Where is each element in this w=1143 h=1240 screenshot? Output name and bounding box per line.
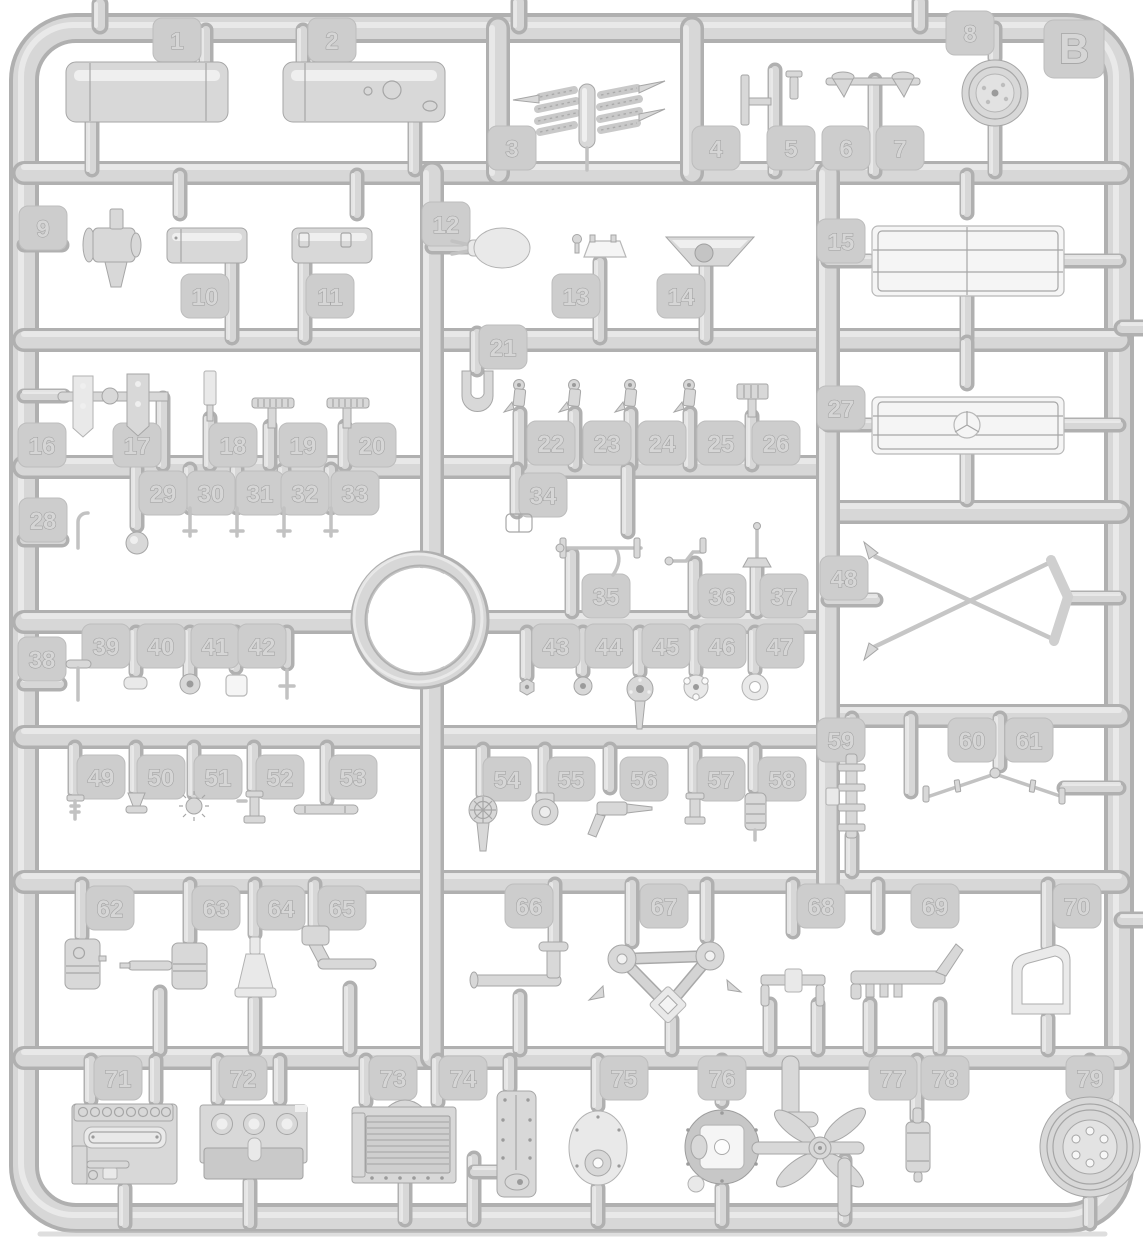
part-tab-59: 59	[817, 718, 865, 762]
part-number-40: 40	[148, 634, 175, 661]
part-number-35: 35	[593, 584, 620, 611]
center-ring	[354, 554, 482, 682]
part-58-ribbed-canister	[745, 793, 766, 840]
part-71-engine-block	[72, 1104, 177, 1184]
part-41-square-pad	[226, 675, 247, 696]
part-tab-3: 3	[488, 126, 536, 170]
part-tab-48: 48	[820, 556, 868, 600]
part-number-13: 13	[563, 284, 590, 311]
part-tab-37: 37	[760, 574, 808, 618]
runner-post	[88, 122, 92, 170]
sprue-bar	[686, 28, 692, 173]
part-69-manifold-bracket	[851, 944, 963, 999]
part-64-funnel-stand	[235, 937, 276, 997]
part-number-21: 21	[490, 335, 517, 362]
runner-post	[311, 884, 315, 924]
part-tab-25: 25	[697, 421, 745, 465]
runner-post	[214, 1060, 218, 1100]
part-50-valve-cone	[126, 793, 147, 813]
part-10-air-tank	[167, 228, 247, 263]
runner-post	[668, 1020, 672, 1050]
sprue-bar	[24, 167, 1119, 173]
part-tab-74: 74	[439, 1056, 487, 1100]
part-tab-63: 63	[192, 886, 240, 930]
part-tab-72: 72	[219, 1056, 267, 1100]
runner-post	[606, 749, 610, 788]
part-tab-60: 60	[948, 718, 996, 762]
runner-post	[568, 554, 572, 612]
part-number-72: 72	[230, 1066, 257, 1093]
runner-post	[434, 1060, 438, 1102]
part-22-25-shock-brackets	[504, 380, 696, 413]
part-tab-75: 75	[600, 1056, 648, 1100]
runner-post	[87, 1060, 91, 1100]
part-number-32: 32	[292, 481, 319, 508]
part-tab-8: 8	[946, 11, 994, 55]
runner-post	[1044, 1018, 1048, 1050]
part-tab-78: 78	[921, 1056, 969, 1100]
part-79-road-wheel	[1040, 1097, 1140, 1197]
runner-post	[516, 413, 520, 465]
part-tab-53: 53	[329, 755, 377, 799]
part-number-15: 15	[828, 229, 855, 256]
part-tab-79: 79	[1066, 1056, 1114, 1100]
part-tab-21: 21	[479, 325, 527, 369]
sprue-bar	[828, 710, 1119, 716]
part-52-spool	[238, 791, 265, 823]
runner-post	[594, 1188, 598, 1222]
part-tab-23: 23	[583, 421, 631, 465]
part-tab-47: 47	[756, 624, 804, 668]
part-number-59: 59	[828, 728, 855, 755]
sprue-bar	[24, 334, 1119, 340]
runner-post	[251, 1000, 255, 1050]
part-number-71: 71	[105, 1066, 132, 1093]
part-number-3: 3	[505, 136, 518, 163]
part-67-triangle-linkage	[589, 942, 741, 1024]
part-tab-19: 19	[279, 423, 327, 467]
part-number-49: 49	[88, 765, 115, 792]
part-tab-10: 10	[181, 274, 229, 318]
part-60-61-linkage	[923, 768, 1065, 804]
part-tab-61: 61	[1005, 718, 1053, 762]
part-tab-6: 6	[822, 126, 870, 170]
runner-post	[963, 454, 967, 500]
part-number-8: 8	[963, 21, 976, 48]
runner-post	[190, 747, 194, 794]
runner-stub	[474, 1168, 498, 1172]
sprue-bar	[822, 173, 828, 882]
part-tab-11: 11	[306, 274, 354, 318]
part-tab-56: 56	[620, 757, 668, 801]
runner-post	[78, 884, 82, 936]
part-tab-77: 77	[869, 1056, 917, 1100]
runner-post	[250, 747, 254, 788]
part-number-31: 31	[247, 481, 274, 508]
part-tab-44: 44	[585, 624, 633, 668]
part-number-52: 52	[267, 765, 294, 792]
runner-post	[353, 175, 357, 214]
part-1-fuel-tank	[66, 62, 228, 122]
runner-post	[132, 632, 136, 672]
runner-post	[996, 718, 1000, 766]
sprue-nub	[515, 2, 519, 26]
part-tab-54: 54	[483, 757, 531, 801]
part-number-47: 47	[767, 634, 794, 661]
part-72-gearbox-plate	[200, 1105, 307, 1179]
part-number-70: 70	[1064, 894, 1091, 921]
part-tab-33: 33	[331, 471, 379, 515]
part-number-34: 34	[530, 483, 557, 510]
runner-post	[71, 747, 75, 792]
part-tab-30: 30	[187, 471, 235, 515]
part-49-bolt	[67, 795, 84, 819]
sprue-bar	[828, 506, 1119, 512]
runner-post	[513, 469, 517, 512]
part-46-notched-disc	[684, 675, 708, 700]
part-tab-14: 14	[657, 274, 705, 318]
part-number-27: 27	[828, 396, 855, 423]
part-tab-13: 13	[552, 274, 600, 318]
part-28-hook-pin	[78, 513, 88, 548]
part-tab-66: 66	[505, 884, 553, 928]
runner-post	[156, 992, 160, 1050]
part-number-50: 50	[148, 765, 175, 792]
part-tab-73: 73	[369, 1056, 417, 1100]
part-2-fuel-tank	[283, 62, 445, 122]
part-number-64: 64	[268, 896, 295, 923]
runner-post	[751, 632, 755, 670]
part-number-19: 19	[290, 433, 317, 460]
part-tab-46: 46	[698, 624, 746, 668]
part-77-cooling-fan	[752, 1056, 870, 1216]
sprue-b-svg: 1234567891011121314151617181920212223242…	[0, 0, 1143, 1240]
part-number-42: 42	[249, 634, 276, 661]
part-number-30: 30	[198, 481, 225, 508]
part-number-53: 53	[340, 765, 367, 792]
part-number-48: 48	[831, 566, 858, 593]
part-number-33: 33	[342, 481, 369, 508]
part-tab-38: 38	[18, 637, 66, 681]
part-73-oil-pan	[352, 1100, 456, 1183]
runner-post	[341, 426, 345, 465]
runner-post	[991, 126, 995, 172]
part-number-44: 44	[596, 634, 623, 661]
part-tab-27: 27	[817, 386, 865, 430]
part-tab-36: 36	[698, 574, 746, 618]
part-43-hex-nut	[520, 679, 534, 695]
part-tab-49: 49	[77, 755, 125, 799]
part-number-75: 75	[611, 1066, 638, 1093]
runner-post	[152, 1060, 156, 1100]
part-63-cylinder-rod	[120, 943, 207, 989]
runner-post	[848, 836, 852, 872]
part-number-62: 62	[97, 896, 124, 923]
part-number-67: 67	[651, 894, 678, 921]
part-tab-68: 68	[797, 884, 845, 928]
runner-post	[691, 749, 695, 790]
part-number-43: 43	[543, 634, 570, 661]
part-29-cap-disc	[126, 532, 148, 554]
part-number-9: 9	[36, 216, 49, 243]
sprue-photo: 1234567891011121314151617181920212223242…	[0, 0, 1143, 1240]
runner-post	[246, 1182, 250, 1224]
part-tab-71: 71	[94, 1056, 142, 1100]
runner-post	[276, 1060, 280, 1100]
part-tab-18: 18	[209, 423, 257, 467]
runner-post	[121, 1188, 125, 1224]
part-number-12: 12	[433, 212, 460, 239]
part-number-10: 10	[192, 284, 219, 311]
part-number-6: 6	[839, 136, 852, 163]
runner-stub	[1064, 421, 1119, 425]
runner-post	[516, 996, 520, 1050]
runner-stub	[1064, 257, 1119, 261]
runner-post	[751, 749, 755, 788]
part-number-74: 74	[450, 1066, 477, 1093]
part-tab-32: 32	[281, 471, 329, 515]
runner-post	[186, 884, 190, 940]
part-number-41: 41	[202, 634, 229, 661]
part-number-37: 37	[771, 584, 798, 611]
part-number-17: 17	[124, 433, 151, 460]
part-number-57: 57	[708, 767, 735, 794]
part-tab-51: 51	[194, 755, 242, 799]
runner-post	[506, 1060, 510, 1088]
part-tab-45: 45	[642, 624, 690, 668]
part-11-air-tank	[292, 228, 372, 263]
runner-post	[686, 413, 690, 465]
part-tab-58: 58	[758, 757, 806, 801]
part-56-nozzle	[588, 802, 652, 837]
part-number-18: 18	[220, 433, 247, 460]
part-76-round-cover	[685, 1110, 759, 1192]
runner-post	[594, 1060, 598, 1106]
part-number-78: 78	[932, 1066, 959, 1093]
sprue-letter-tab: B	[1044, 20, 1104, 78]
runner-post	[323, 747, 327, 800]
part-number-66: 66	[516, 894, 543, 921]
part-tab-62: 62	[86, 886, 134, 930]
part-number-14: 14	[668, 284, 695, 311]
part-tab-31: 31	[236, 471, 284, 515]
part-number-2: 2	[325, 28, 338, 55]
runner-post	[718, 1188, 722, 1222]
runner-post	[963, 296, 967, 338]
runner-post	[636, 632, 640, 672]
part-45-flanged-hub	[627, 676, 653, 729]
runner-post	[346, 988, 350, 1050]
part-48-scissor-linkage	[864, 542, 1068, 660]
sprue-letter: B	[1059, 25, 1089, 72]
part-number-73: 73	[380, 1066, 407, 1093]
part-66-exhaust-pipe	[470, 942, 568, 988]
part-44-washer-disc	[574, 677, 592, 695]
runner-post	[541, 749, 545, 790]
sprue-nub	[916, 2, 920, 26]
sprue-nub	[1122, 916, 1143, 920]
part-tab-15: 15	[817, 219, 865, 263]
runner-post	[748, 416, 752, 465]
part-tab-34: 34	[519, 473, 567, 517]
runner-post	[753, 567, 757, 612]
part-number-16: 16	[29, 433, 56, 460]
runner-post	[874, 884, 878, 928]
part-tab-42: 42	[238, 624, 286, 668]
part-number-5: 5	[784, 136, 797, 163]
runner-post	[133, 469, 137, 526]
part-number-61: 61	[1016, 728, 1043, 755]
part-number-28: 28	[30, 508, 57, 535]
part-tab-26: 26	[752, 421, 800, 465]
runner-post	[479, 749, 483, 794]
part-tab-12: 12	[422, 202, 470, 246]
part-number-38: 38	[29, 647, 56, 674]
part-tab-43: 43	[532, 624, 580, 668]
part-number-68: 68	[808, 894, 835, 921]
part-74-side-cover	[497, 1091, 536, 1197]
part-65-crank-arm	[302, 926, 376, 969]
runner-post	[691, 563, 695, 612]
part-tab-50: 50	[137, 755, 185, 799]
part-number-45: 45	[653, 634, 680, 661]
part-number-56: 56	[631, 767, 658, 794]
part-57-capped-bushing	[685, 793, 705, 824]
part-number-69: 69	[922, 894, 949, 921]
part-tab-5: 5	[767, 126, 815, 170]
part-14-funnel-bowl	[666, 237, 754, 266]
runner-post	[963, 175, 967, 213]
runner-post	[176, 175, 180, 214]
part-number-20: 20	[359, 433, 386, 460]
runner-post	[703, 884, 707, 938]
part-number-79: 79	[1077, 1066, 1104, 1093]
runner-post	[202, 30, 206, 62]
part-tab-41: 41	[191, 624, 239, 668]
part-number-25: 25	[708, 431, 735, 458]
part-tab-69: 69	[911, 884, 959, 928]
runner-post	[362, 1060, 366, 1102]
part-number-7: 7	[893, 136, 906, 163]
runner-post	[692, 632, 696, 672]
part-tab-70: 70	[1053, 884, 1101, 928]
part-tab-35: 35	[582, 574, 630, 618]
part-53-rod-handle	[294, 805, 358, 814]
runner-post	[628, 884, 632, 942]
part-26-ribbed-clamp	[737, 384, 768, 417]
part-38-flat-head-pin	[66, 660, 91, 700]
part-13-seat-bracket	[573, 235, 627, 258]
part-55-eyelet	[532, 793, 558, 825]
runner-post	[907, 718, 911, 792]
runner-post	[766, 1004, 770, 1050]
runner-post	[624, 469, 628, 532]
runner-post	[186, 632, 190, 676]
part-37-gear-lever	[743, 523, 771, 568]
part-62-piston-cylinder	[65, 939, 106, 989]
part-15-radiator-grille	[872, 226, 1064, 296]
runner-post	[936, 1004, 940, 1050]
part-tab-7: 7	[876, 126, 924, 170]
runner-stub	[1064, 784, 1119, 788]
part-number-58: 58	[769, 767, 796, 794]
part-number-23: 23	[594, 431, 621, 458]
part-number-51: 51	[205, 765, 232, 792]
part-number-54: 54	[494, 767, 521, 794]
part-42-cross-pin	[280, 670, 294, 698]
part-number-11: 11	[317, 284, 342, 311]
runner-post	[1086, 1200, 1090, 1224]
sprue-nub	[96, 4, 100, 26]
runner-post	[1044, 884, 1048, 946]
part-tab-24: 24	[638, 421, 686, 465]
part-40-washer	[180, 674, 200, 694]
part-tab-9: 9	[19, 206, 67, 250]
part-tab-20: 20	[348, 423, 396, 467]
runner-post	[401, 1184, 405, 1220]
part-tab-64: 64	[257, 886, 305, 930]
part-tab-65: 65	[318, 886, 366, 930]
part-number-36: 36	[709, 584, 736, 611]
part-number-1: 1	[170, 28, 183, 55]
runner-post	[411, 122, 415, 170]
part-8-pulley-wheel	[962, 60, 1028, 126]
part-75-oval-cover	[569, 1111, 627, 1185]
part-number-26: 26	[763, 431, 790, 458]
part-number-46: 46	[709, 634, 736, 661]
runner-post	[866, 1004, 870, 1050]
part-27-radiator-grille-emblem	[872, 397, 1064, 454]
part-70-d-plate	[1012, 945, 1070, 1014]
part-39-pad	[124, 677, 147, 689]
runner-post	[871, 80, 875, 172]
part-number-39: 39	[93, 634, 120, 661]
part-tab-22: 22	[527, 421, 575, 465]
part-tab-28: 28	[19, 498, 67, 542]
runner-post	[266, 426, 270, 465]
runner-post	[473, 333, 477, 370]
part-number-60: 60	[959, 728, 986, 755]
part-tab-29: 29	[139, 471, 187, 515]
part-number-29: 29	[150, 481, 177, 508]
part-tab-67: 67	[640, 884, 688, 928]
part-number-77: 77	[880, 1066, 907, 1093]
runner-post	[299, 30, 303, 62]
part-number-55: 55	[558, 767, 585, 794]
part-tab-2: 2	[308, 18, 356, 62]
part-54-handwheel	[469, 796, 497, 851]
part-number-63: 63	[203, 896, 230, 923]
runner-post	[523, 632, 527, 676]
part-9-water-pump	[83, 209, 141, 287]
part-tab-4: 4	[692, 126, 740, 170]
runner-stub	[1070, 594, 1119, 598]
runner-post	[814, 1004, 818, 1050]
runner-post	[789, 884, 793, 932]
part-tab-76: 76	[698, 1056, 746, 1100]
runner-post	[301, 264, 305, 338]
part-tab-1: 1	[153, 18, 201, 62]
part-number-22: 22	[538, 431, 565, 458]
runner-post	[963, 342, 967, 384]
part-number-24: 24	[649, 431, 676, 458]
part-number-76: 76	[709, 1066, 736, 1093]
part-tab-16: 16	[18, 423, 66, 467]
runner-post	[251, 884, 255, 934]
sprue-nub	[1122, 324, 1143, 328]
part-number-65: 65	[329, 896, 356, 923]
part-number-4: 4	[709, 136, 723, 163]
